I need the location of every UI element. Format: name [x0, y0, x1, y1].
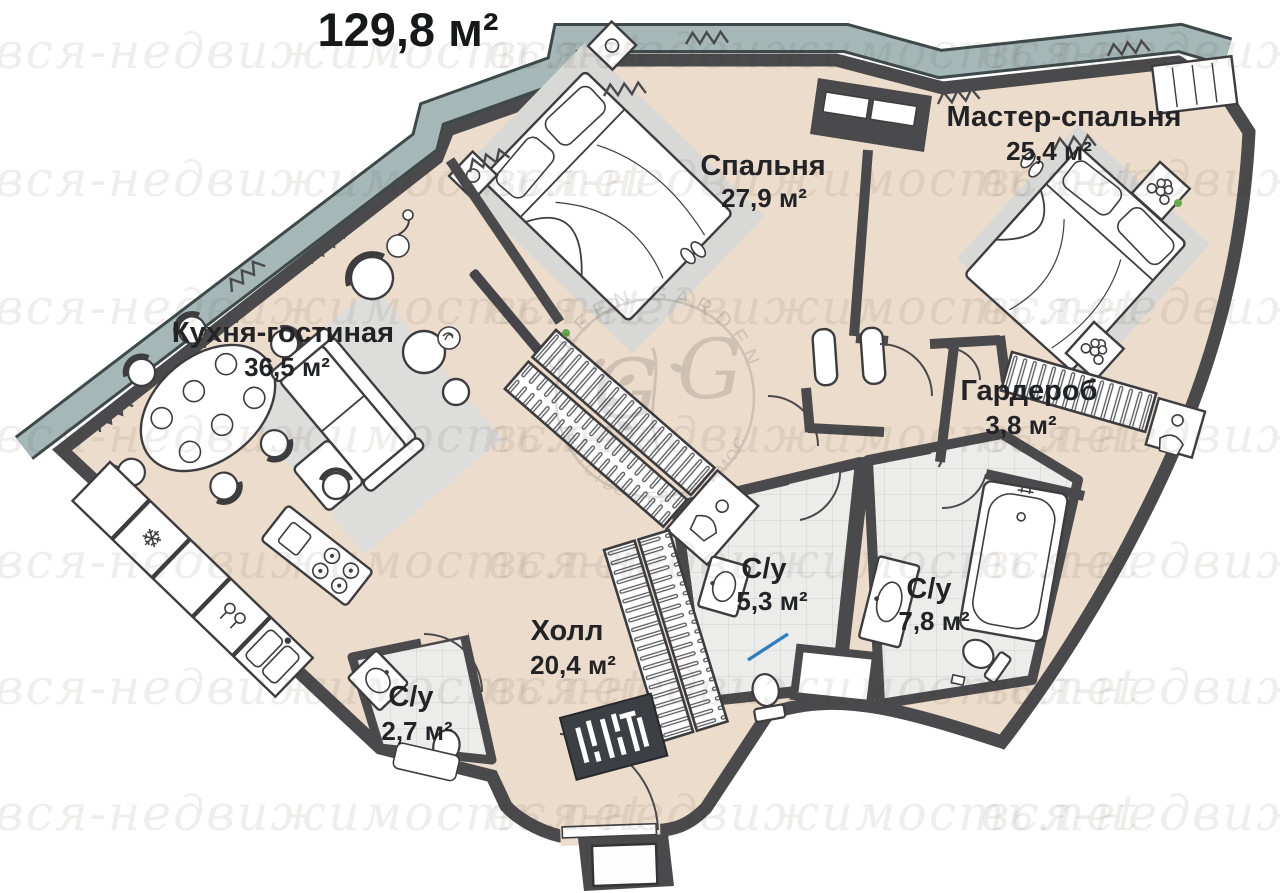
room-name: Кухня-гостиная [172, 317, 394, 349]
room-area: 2,7 м² [381, 716, 453, 746]
room-area: 25,4 м² [1006, 136, 1092, 166]
room-area: 3,8 м² [985, 410, 1057, 440]
watermark-text: вся-недвижимость.net [981, 533, 1280, 590]
watermark-text: вся-недвижимость.net [981, 659, 1280, 716]
room-name: Мастер-спальня [947, 101, 1182, 133]
room-area: 20,4 м² [530, 650, 616, 680]
room-name: С/у [741, 553, 786, 585]
total-area-title: 129,8 м² [317, 3, 498, 56]
room-name: С/у [906, 573, 951, 605]
room-name: Гардероб [960, 375, 1097, 407]
logo-monogram-right: G [677, 323, 743, 418]
entrance-landing [592, 844, 657, 886]
room-area: 36,5 м² [244, 352, 330, 382]
room-area: 5,3 м² [736, 586, 808, 616]
floor-plan: ❄ [0, 0, 1280, 893]
watermark-text: вся-недвижимость.net [981, 23, 1280, 80]
bar-stool [321, 470, 351, 499]
watermark-text: вся-недвижимость.net [981, 785, 1280, 842]
room-name: С/у [388, 681, 433, 713]
floorplan-screenshot: ❄ [0, 0, 1280, 893]
room-name: Холл [531, 615, 604, 647]
room-name: Спальня [700, 150, 825, 182]
room-area: 7,8 м² [898, 606, 970, 636]
room-area: 27,9 м² [721, 183, 807, 213]
side-table [443, 379, 469, 405]
watermark-text: вся-недвижимость.net [981, 279, 1280, 336]
